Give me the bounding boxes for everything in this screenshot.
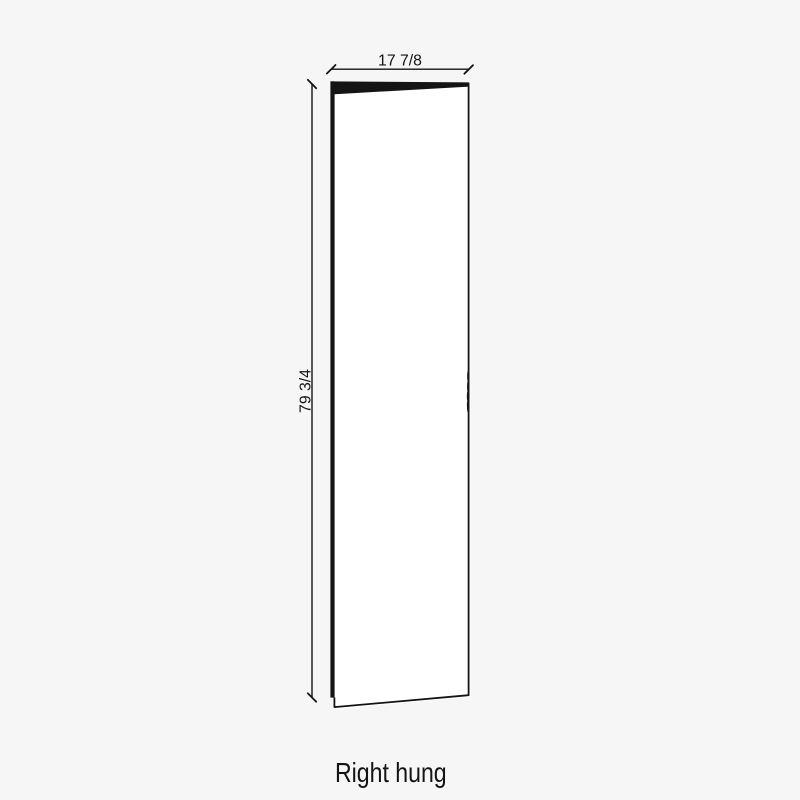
svg-text:79 3/4: 79 3/4 [297, 369, 314, 413]
svg-text:17 7/8: 17 7/8 [378, 53, 422, 70]
svg-text:Right hung: Right hung [335, 758, 447, 788]
